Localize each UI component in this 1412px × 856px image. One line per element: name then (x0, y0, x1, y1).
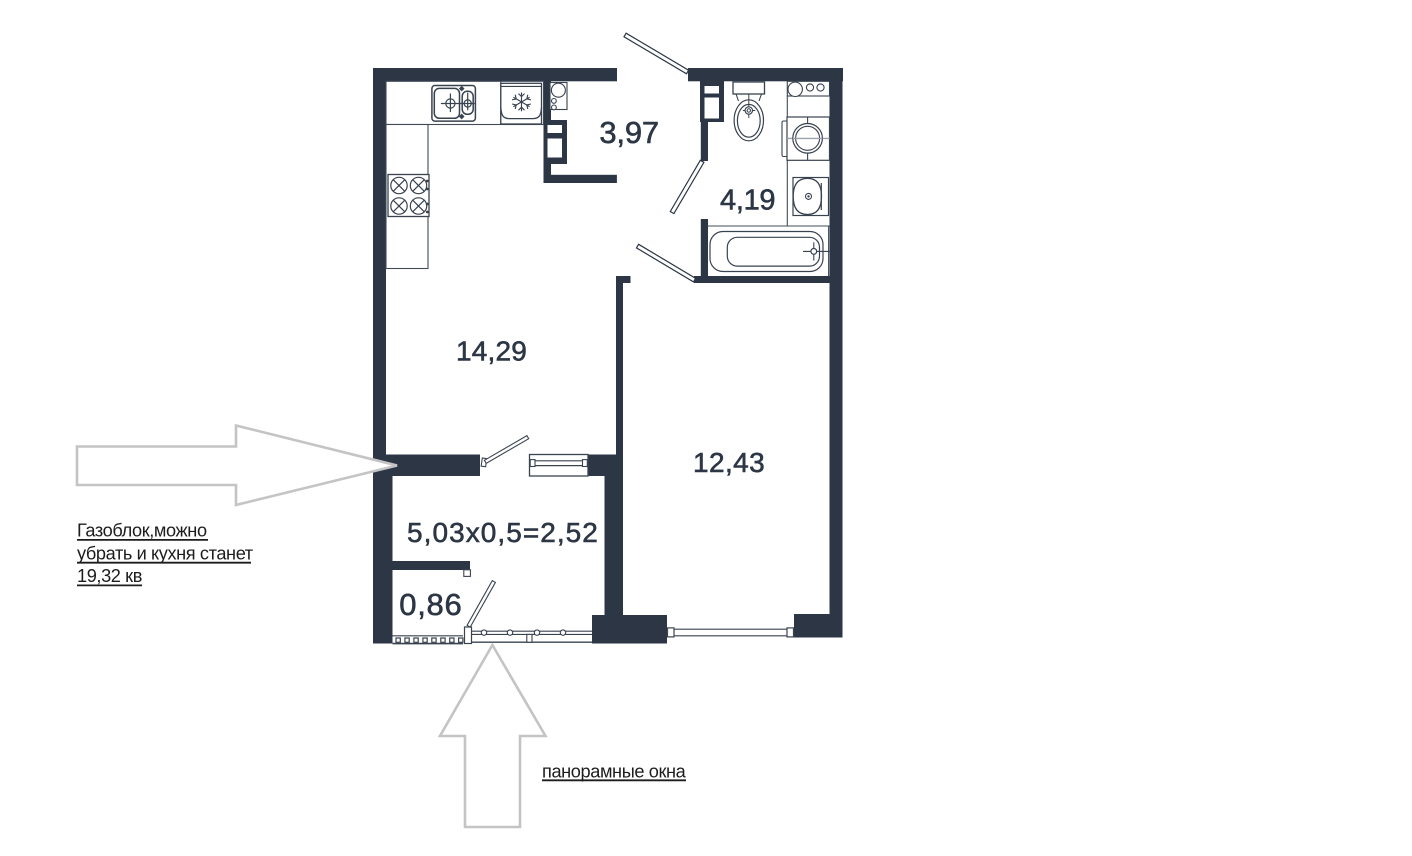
svg-text:Газоблок,можно: Газоблок,можно (77, 521, 207, 541)
svg-text:0,86: 0,86 (399, 587, 462, 622)
svg-text:3,97: 3,97 (599, 115, 659, 150)
svg-text:19,32 кв: 19,32 кв (77, 566, 142, 586)
svg-text:панорамные окна: панорамные окна (542, 762, 687, 782)
svg-text:14,29: 14,29 (456, 335, 527, 366)
svg-text:5,03x0,5=2,52: 5,03x0,5=2,52 (407, 517, 599, 548)
svg-text:убрать и кухня станет: убрать и кухня станет (77, 543, 254, 563)
svg-text:12,43: 12,43 (693, 447, 765, 478)
svg-text:4,19: 4,19 (720, 185, 775, 217)
